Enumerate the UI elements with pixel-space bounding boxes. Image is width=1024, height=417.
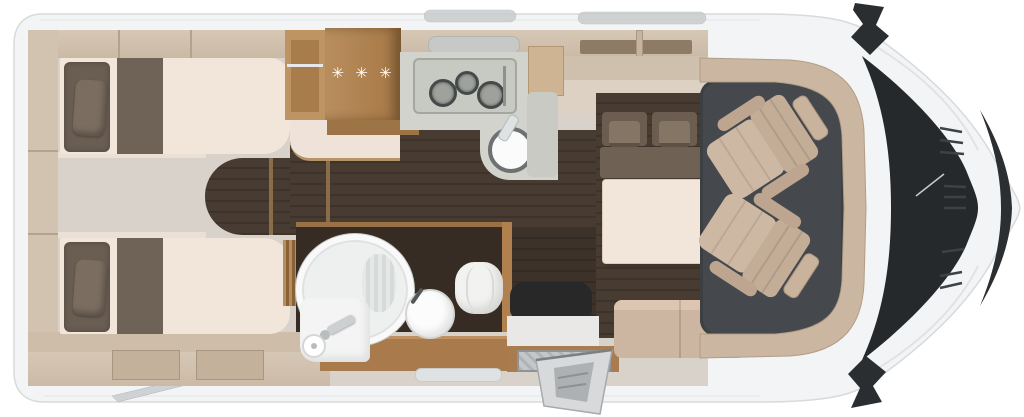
motorhome-floorplan: ✳ ✳ ✳ <box>0 0 1024 417</box>
entry-door-open <box>536 350 612 414</box>
door-overlay-layer <box>0 0 1024 417</box>
